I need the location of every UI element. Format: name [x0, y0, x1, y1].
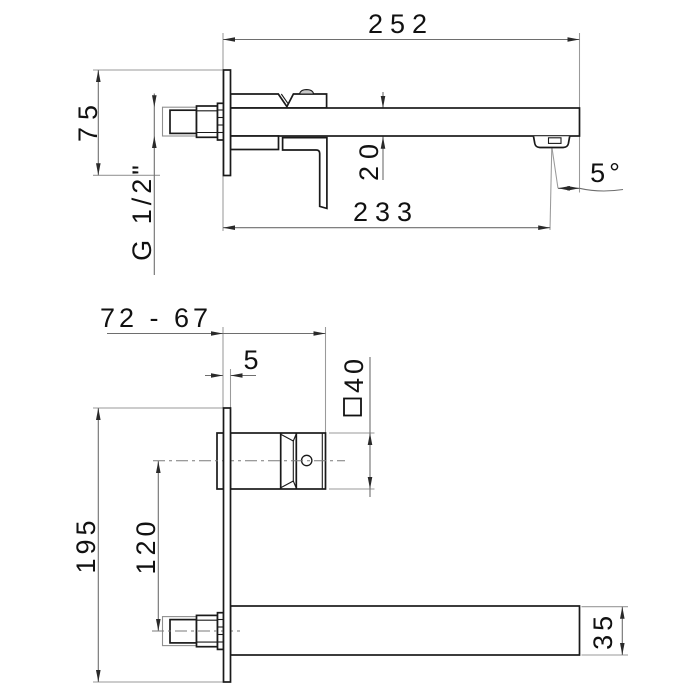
dim-label-5: 5: [243, 345, 262, 375]
arrowhead: [223, 37, 235, 42]
dim-label-5deg: 5°: [590, 158, 624, 188]
technical-drawing-canvas: 252 233 75 20 G 1/2": [0, 0, 700, 700]
dim-label-233: 233: [353, 197, 419, 227]
lever-handle: [283, 138, 327, 209]
arrowhead: [96, 70, 101, 82]
dim-inlet-thread: G 1/2": [127, 94, 157, 276]
dim-depth-range: 72 - 67: [100, 303, 326, 336]
square-section-symbol: [344, 399, 361, 416]
front-view-object: [152, 408, 580, 682]
ext-line-stream-tilted: [552, 147, 558, 189]
spout: [231, 606, 580, 655]
arrowhead: [568, 186, 580, 191]
arrowhead: [152, 95, 157, 107]
arrowhead: [568, 37, 580, 42]
arrowhead: [538, 225, 550, 230]
dim-label-120: 120: [131, 517, 161, 574]
wall-plate: [224, 70, 231, 176]
dim-label-35: 35: [588, 612, 618, 650]
valve-body-upper: [231, 94, 327, 108]
dim-stream-angle: 5°: [558, 158, 624, 191]
dim-label-20: 20: [354, 137, 384, 181]
dim-spout-reach: 233: [223, 197, 550, 230]
arrowhead: [314, 331, 326, 336]
arrowhead: [156, 461, 161, 473]
wall-plate: [224, 408, 231, 682]
leader-curve: [580, 188, 624, 191]
faucet-dimension-drawing: 252 233 75 20 G 1/2": [0, 0, 700, 700]
dim-overall-projection: 252: [223, 9, 580, 42]
arrowhead: [231, 373, 243, 378]
washer-stack: [218, 103, 224, 140]
arrowhead: [620, 607, 625, 619]
dim-handle-square: 40: [339, 355, 372, 497]
ext-line-stream: [550, 147, 552, 231]
arrowhead: [211, 373, 223, 378]
arrowhead: [96, 670, 101, 682]
arrowhead: [156, 619, 161, 631]
arrowhead: [152, 136, 157, 148]
dim-label-40: 40: [339, 355, 369, 393]
arrowhead: [211, 331, 223, 336]
front-view: 72 - 67 5 40 195: [71, 303, 628, 682]
arrowhead: [96, 163, 101, 175]
dim-label-75: 75: [73, 98, 103, 142]
arrowhead: [368, 433, 373, 445]
dim-plate-thickness: 5: [205, 345, 263, 378]
cartridge-dome: [300, 90, 314, 94]
dim-label-7267: 72 - 67: [100, 303, 212, 333]
arrowhead: [96, 408, 101, 420]
dim-spout-axis-offset: 120: [131, 461, 161, 631]
dim-plate-height: 195: [71, 408, 101, 682]
thread-core: [170, 110, 197, 133]
dim-spout-height: 35: [588, 607, 625, 655]
inlet-nipple: [163, 103, 224, 140]
arrowhead: [223, 225, 235, 230]
valve-body-lower: [231, 136, 279, 150]
arrowhead: [620, 643, 625, 655]
arrowhead: [368, 477, 373, 489]
dim-label-252: 252: [368, 9, 434, 39]
arrowhead: [381, 96, 386, 108]
top-view: 252 233 75 20 G 1/2": [73, 9, 624, 275]
dim-label-195: 195: [71, 516, 101, 573]
spout: [231, 108, 580, 136]
set-screw-hole: [302, 455, 312, 465]
dim-label-g12: G 1/2": [127, 161, 157, 261]
dim-plate-width: 75: [73, 70, 103, 175]
